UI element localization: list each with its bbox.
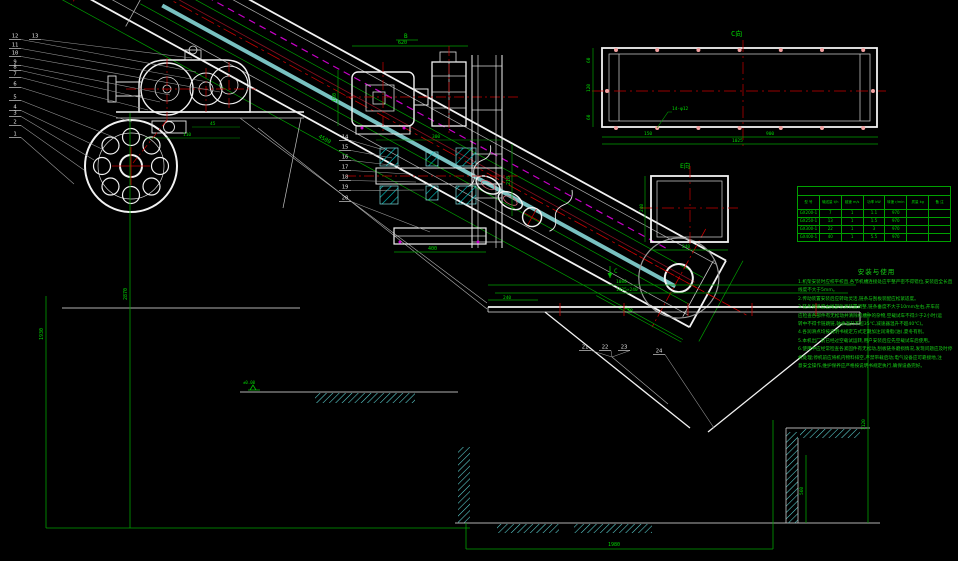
spec-cell [907,210,929,218]
spec-cell: 5.5 [863,234,885,242]
spec-table-header-row: 型 号输送量 t/h链速 m/s功率 kW转速 r/min质量 kg备 注 [798,196,951,210]
spec-cell: 970 [885,218,907,226]
spec-col-header: 质量 kg [907,196,929,210]
balloon-18: 18 [342,175,349,181]
view-e-label: E向 [680,161,690,170]
dim-coupling-b: 110 [183,132,191,138]
dim-rect-left-a: 60 [586,57,592,63]
spec-cell: 970 [885,226,907,234]
spec-cell [929,226,951,234]
spec-cell: 3 [863,226,885,234]
spec-row: GX400-14015.5970 [798,234,951,242]
balloon-22: 22 [602,345,609,351]
spec-cell: 7 [819,210,841,218]
spec-cell: GX200-1 [798,210,820,218]
note-line: 5.本机出厂前已经过空载试运转,用户安装后应先空载试车后使用。 [798,338,955,346]
dim-coupling-a: 45 [210,121,216,127]
note-line: 线度不大于5mm。 [798,287,955,295]
note-line: 2.传动装置安装后应转动灵活,链条与刮板装配应松紧适度。 [798,296,955,304]
dim-hopper-flange: 1025×240 [616,287,638,293]
dim-bottom-overall: 1980 [608,542,620,548]
balloon-2: 2 [13,120,16,126]
note-line: 6.使用中应经常检查各紧固件有无松动,刮板链条磨损情况,发现问题应及时停 [798,346,955,354]
balloon-14: 14 [342,135,349,141]
spec-col-header: 转速 r/min [885,196,907,210]
cad-drawing-canvas: 4500 640 [0,0,958,561]
balloon-23: 23 [621,345,628,351]
dim-right-a: 560 [799,487,805,495]
spec-cell [907,226,929,234]
spec-cell: 1 [841,234,863,242]
conveyor-trough: 4500 640 [0,0,777,366]
dim-rect-bottom-b: 900 [766,131,774,137]
balloon-3: 3 [13,111,16,117]
spec-col-header: 功率 kW [863,196,885,210]
spec-cell: 970 [885,234,907,242]
flange-bolt-holes [605,48,875,130]
spec-cell: 1 [841,226,863,234]
balloon-20: 20 [342,196,349,202]
note-line: 应检查各部件有无松动并清除机槽中的杂物,空载试车不得少于2小时(运 [798,313,955,321]
view-c-label: C向 [731,29,742,38]
spec-cell [929,218,951,226]
gearbox-view: 45 110 [108,46,487,309]
balloon-8: 8 [13,65,16,71]
note-line: 意安全操作,维护保养应严格按说明书规定执行,确保设备完好。 [798,363,955,371]
spec-row: GX200-1711.1970 [798,210,951,218]
balloon-5: 5 [13,95,16,101]
dim-incline-length: 4500 [317,134,332,146]
spec-cell: 13 [819,218,841,226]
dim-rect-left-c: 60 [586,114,592,120]
dim-hopper-left: 240 [503,295,511,301]
spec-row: GX250-11311.5970 [798,218,951,226]
dim-head-height: 2870 [123,288,129,300]
section-b-label: B [404,33,408,40]
spec-cell: 1.1 [863,210,885,218]
balloon-21: 21 [582,345,589,351]
drive-pulley [85,120,177,212]
spec-cell: GX400-1 [798,234,820,242]
balloon-15: 15 [342,145,349,151]
dim-motor-bottom: 400 [428,246,437,252]
balloon-17: 17 [342,165,349,171]
spec-col-header: 链速 m/s [841,196,863,210]
spec-row: GX300-12213970 [798,226,951,234]
spec-cell: GX250-1 [798,218,820,226]
dim-rect-left-b: 120 [586,84,592,92]
dim-hopper-overall: 1080 [616,279,627,285]
dim-motor-left: 160 [332,93,338,102]
dim-motor-top: 620 [398,40,407,46]
spec-col-header: 型 号 [798,196,820,210]
part-balloons: 121110987654321131415161718192021222324 [9,34,714,429]
dim-rect-bottom-a: 150 [644,131,652,137]
dim-motor-right: 210 [506,176,512,185]
dim-rect-bottom-overall: 1025 [732,138,743,144]
flange-view-c: C向 60 120 60 150 900 1025 14-φ12 [586,29,886,150]
balloon-1: 1 [13,132,16,138]
note-line: 3.链条张紧度由尾部张紧装置调整,链条垂度不大于10mm左右,开车前 [798,304,955,312]
hopper-bolt-ticks [560,303,816,316]
dim-right-b: 1120 [861,419,867,430]
incline-dimensions: 4500 640 [44,0,743,349]
spec-col-header: 备 注 [929,196,951,210]
spec-cell [929,234,951,242]
spec-cell [929,210,951,218]
spec-cell: 1 [841,210,863,218]
spec-cell: 970 [885,210,907,218]
notes-title: 安装与使用 [798,266,955,276]
balloon-group-left-parts: 121110987654321 [9,34,220,185]
balloon-19: 19 [342,185,349,191]
flange-view-e: E向 240 240 [639,161,738,252]
balloon-24: 24 [656,349,663,355]
spec-cell: GX300-1 [798,226,820,234]
spec-col-header: 输送量 t/h [819,196,841,210]
spec-cell: 1 [841,218,863,226]
note-line: 机处理;停机前应将机内物料排空,严禁带载启动;电气设备应可靠接地,注 [798,355,955,363]
notes-lines: 1.机架安装时应校平校直,各节机槽连接处应平整严密不得错位,安装后全长直 线度不… [798,279,955,371]
note-line: 转中不得卡链跳链,轴承温升不超35℃,减速器温升不超40℃)。 [798,321,955,329]
dim-elevation: ±0.00 [243,380,256,385]
balloon-10: 10 [12,51,19,57]
arrow-c-label: C [614,268,618,275]
spec-table: 型 号输送量 t/h链速 m/s功率 kW转速 r/min质量 kg备 注 GX… [797,186,951,242]
dim-rect-holes: 14-φ12 [672,106,689,112]
note-line: 4.各润滑点均按说明书规定方式定期加注润滑脂(油),夏冬有别。 [798,329,955,337]
installation-notes: 安装与使用 1.机架安装时应校平校直,各节机槽连接处应平整严密不得错位,安装后全… [798,266,955,371]
dim-square-left: 240 [639,204,645,212]
spec-table-title [798,187,951,196]
spec-cell: 22 [819,226,841,234]
balloon-12: 12 [12,34,19,40]
spec-cell: 1.5 [863,218,885,226]
note-line: 1.机架安装时应校平校直,各节机槽连接处应平整严密不得错位,安装后全长直 [798,279,955,287]
balloon-16: 16 [342,155,349,161]
spec-cell: 40 [819,234,841,242]
balloon-6: 6 [13,82,16,88]
spec-cell [907,218,929,226]
balloon-13: 13 [32,34,39,40]
balloon-11: 11 [12,43,19,49]
dim-motor-mid: 300 [432,134,440,140]
spec-cell [907,234,929,242]
dim-square-bottom: 240 [682,244,690,250]
balloon-7: 7 [13,72,16,78]
dim-left-height: 1930 [39,328,45,340]
